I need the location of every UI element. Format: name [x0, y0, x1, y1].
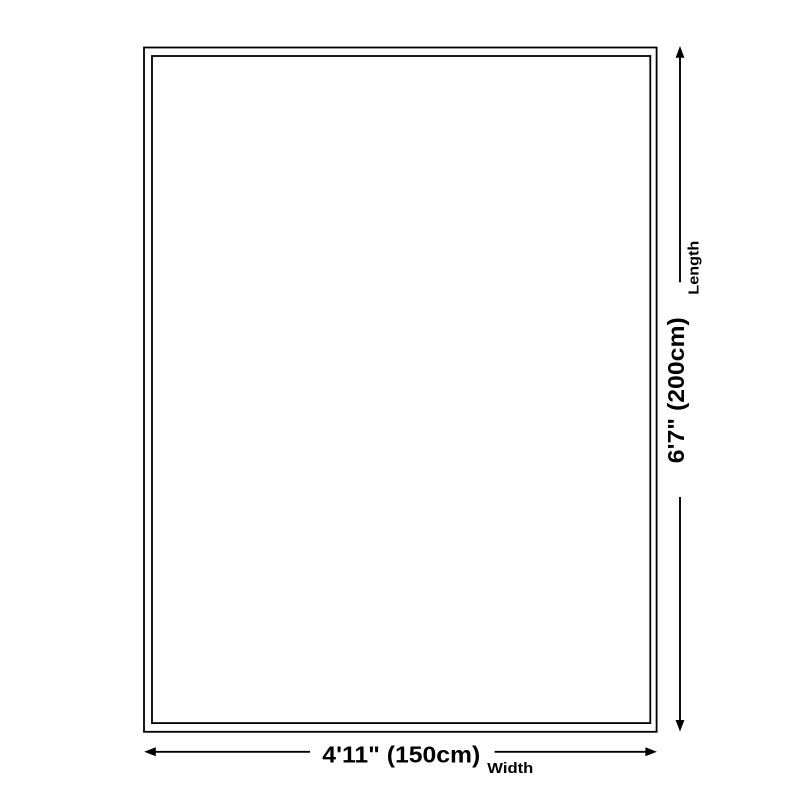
svg-text:Length: Length	[686, 241, 703, 295]
svg-text:Width: Width	[487, 760, 533, 777]
svg-text:6'7" (200cm): 6'7" (200cm)	[663, 317, 689, 463]
svg-text:4'11" (150cm): 4'11" (150cm)	[322, 742, 480, 768]
